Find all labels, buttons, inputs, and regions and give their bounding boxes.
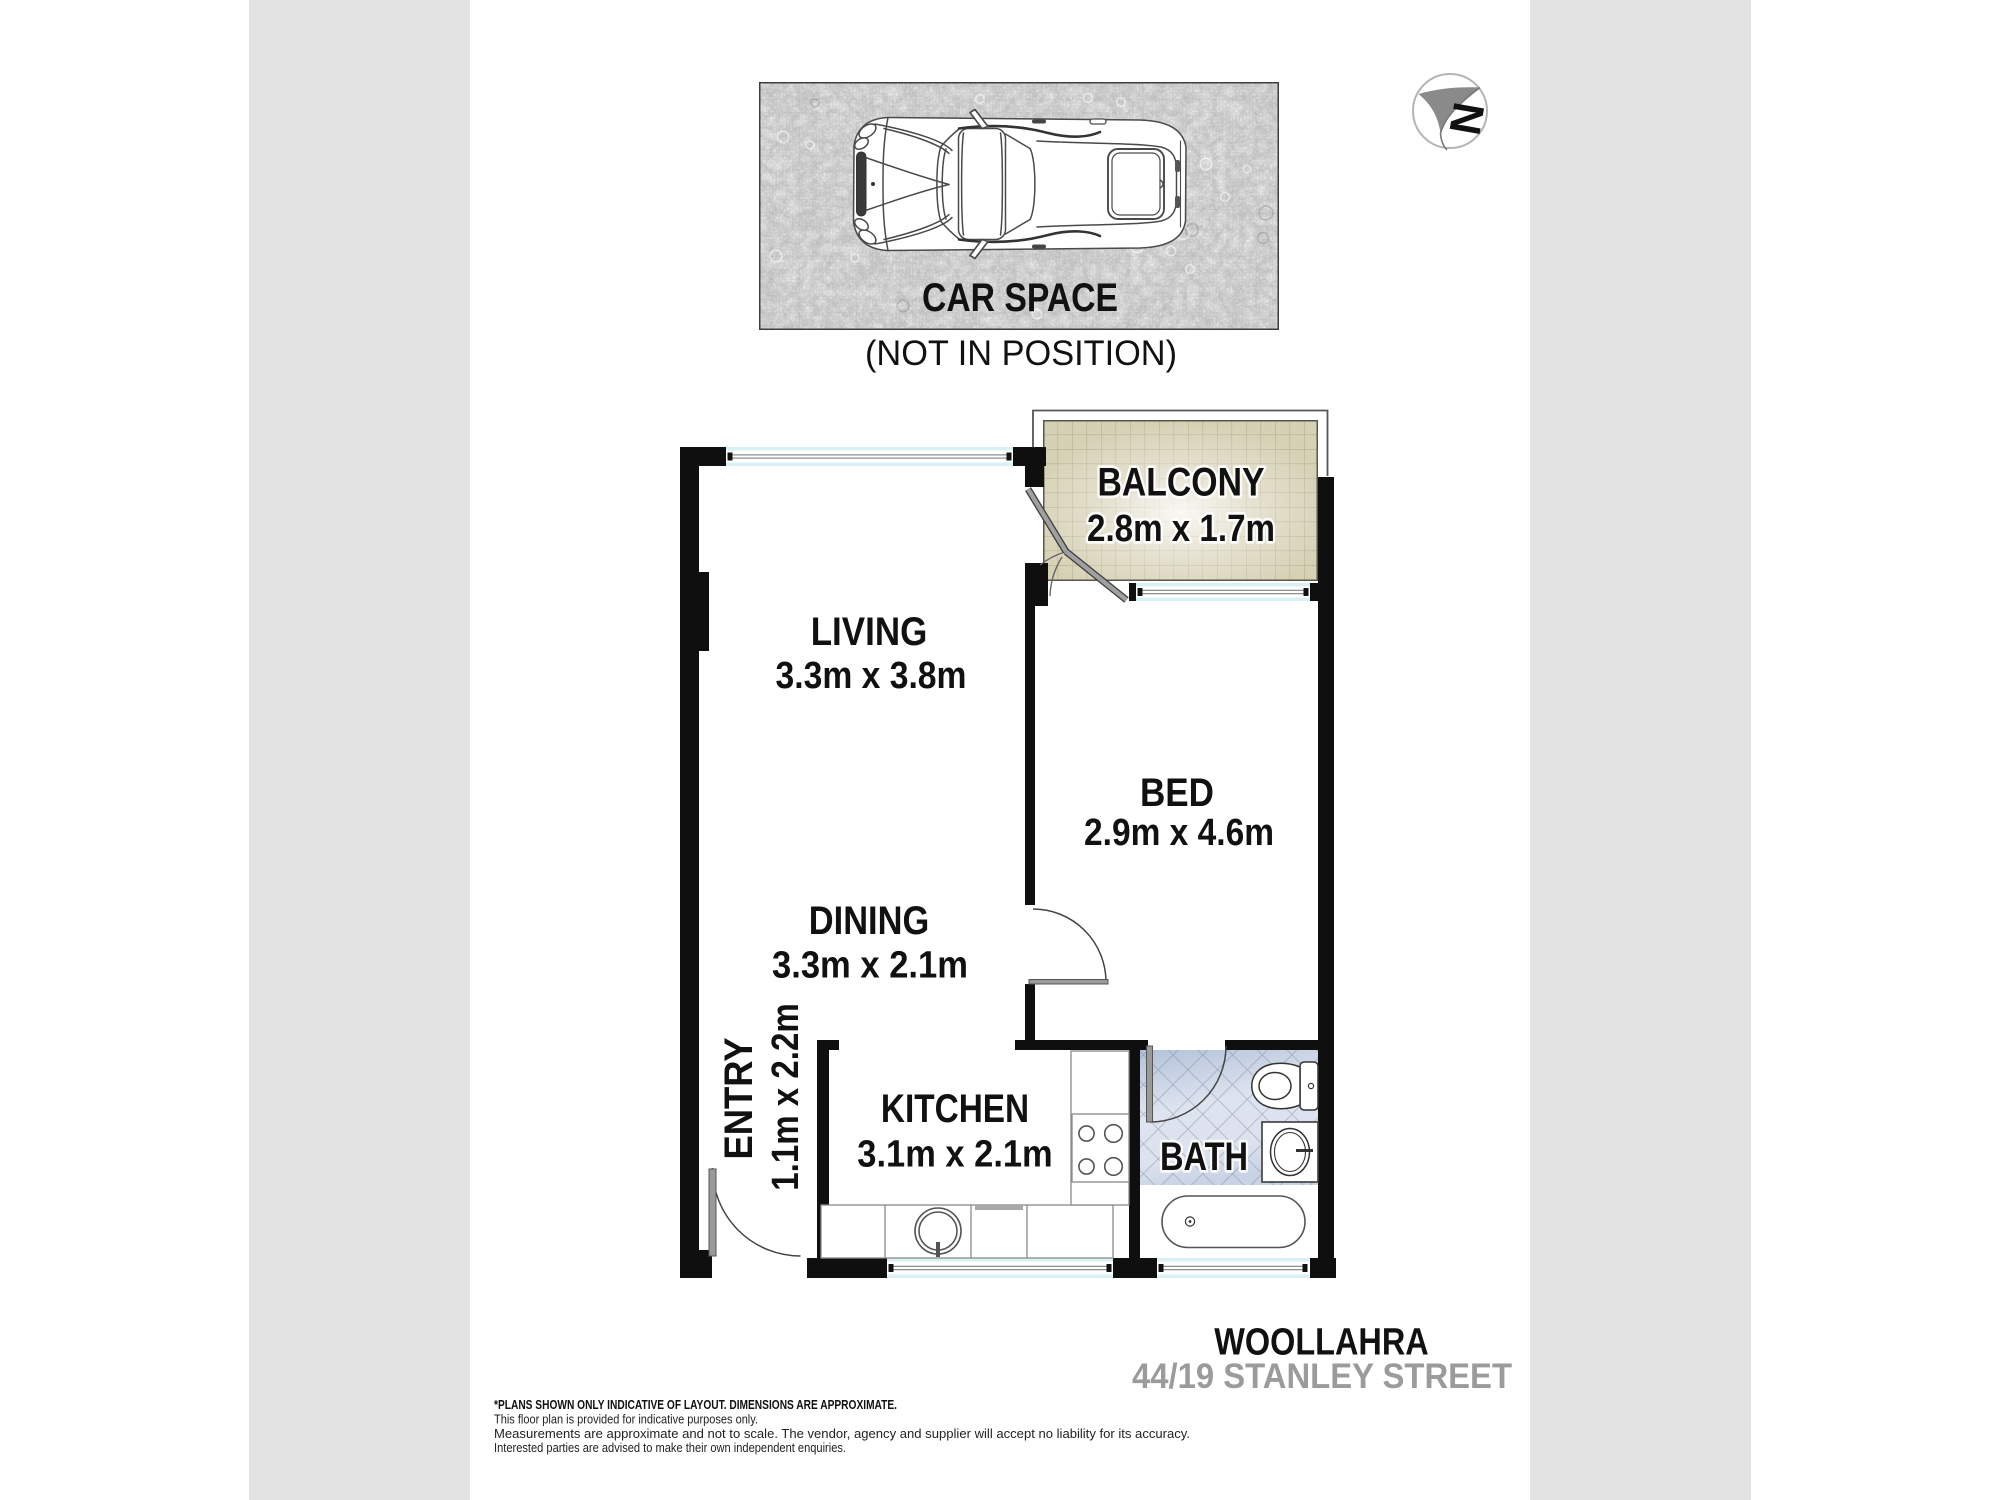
svg-text:BATH: BATH bbox=[1160, 1135, 1248, 1179]
svg-text:1.1m x 2.2m: 1.1m x 2.2m bbox=[765, 1003, 807, 1191]
svg-text:3.3m x 3.8m: 3.3m x 3.8m bbox=[776, 655, 967, 697]
svg-text:LIVING: LIVING bbox=[811, 610, 928, 654]
svg-text:3.1m x 2.1m: 3.1m x 2.1m bbox=[857, 1134, 1052, 1176]
svg-text:*PLANS SHOWN ONLY INDICATIVE O: *PLANS SHOWN ONLY INDICATIVE OF LAYOUT. … bbox=[494, 1397, 897, 1412]
svg-text:Measurements are approximate a: Measurements are approximate and not to … bbox=[494, 1426, 1190, 1441]
svg-text:44/19 STANLEY STREET: 44/19 STANLEY STREET bbox=[1132, 1357, 1512, 1396]
svg-text:This floor plan is provided fo: This floor plan is provided for indicati… bbox=[494, 1412, 758, 1427]
svg-text:2.8m x 1.7m: 2.8m x 1.7m bbox=[1087, 508, 1275, 550]
svg-text:CAR SPACE: CAR SPACE bbox=[922, 276, 1118, 320]
svg-text:BED: BED bbox=[1140, 771, 1214, 815]
svg-text:2.9m x 4.6m: 2.9m x 4.6m bbox=[1084, 812, 1274, 854]
svg-text:(NOT IN POSITION): (NOT IN POSITION) bbox=[865, 334, 1177, 373]
svg-text:ENTRY: ENTRY bbox=[717, 1038, 761, 1160]
svg-text:Interested parties are advised: Interested parties are advised to make t… bbox=[494, 1440, 846, 1455]
svg-text:3.3m x 2.1m: 3.3m x 2.1m bbox=[772, 945, 968, 987]
svg-text:DINING: DINING bbox=[809, 899, 929, 943]
svg-text:KITCHEN: KITCHEN bbox=[881, 1087, 1029, 1131]
svg-text:BALCONY: BALCONY bbox=[1098, 461, 1265, 505]
